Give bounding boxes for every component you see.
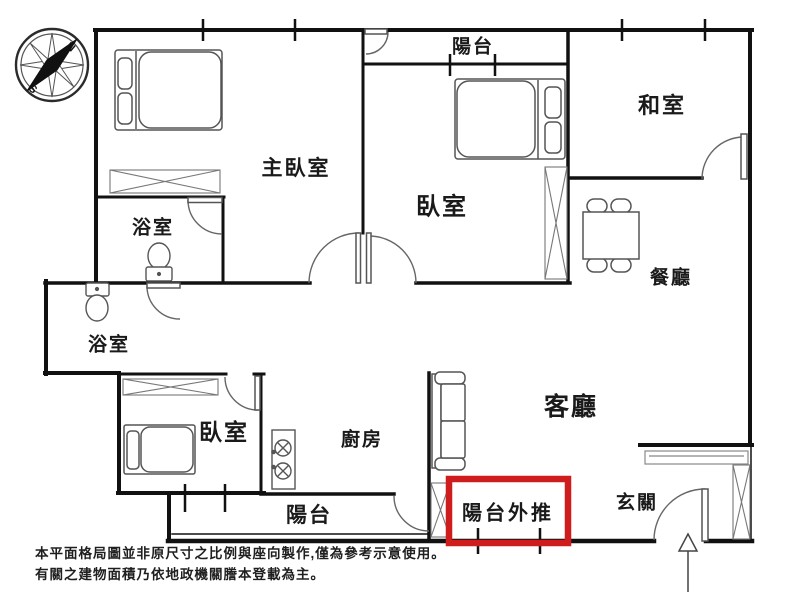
compass-icon: N S	[16, 29, 88, 101]
room-label-balcony-top: 陽台	[452, 32, 494, 59]
upper-bedroom-door-arc	[369, 236, 416, 283]
dining-chair	[587, 258, 607, 272]
master-wardrobe	[110, 170, 220, 193]
kitchen-balcony-door-arc	[394, 496, 429, 531]
room-label-entryway: 玄關	[616, 488, 658, 515]
entry-arrow	[679, 534, 697, 592]
disclaimer-line-1: 本平面格局圖並非原尺寸之比例與座向製作,僅為參考示意使用。	[35, 543, 446, 564]
sofa	[432, 372, 465, 470]
entry-door-arc	[654, 489, 705, 540]
lower-bedroom-bed	[124, 425, 195, 474]
toilet-lower	[86, 283, 109, 321]
master-bed	[115, 50, 222, 130]
upper-bedroom-wardrobe	[545, 167, 567, 279]
dining-table	[583, 212, 639, 259]
lower-bedroom-door-arc	[225, 377, 258, 410]
disclaimer-line-2: 有關之建物面積乃依地政機關謄本登載為主。	[35, 564, 446, 585]
entry-shelf	[645, 451, 748, 464]
balcony-small-door-arc	[366, 32, 388, 54]
stove	[272, 430, 295, 489]
dining-set	[583, 199, 639, 272]
room-label-bathroom-lower: 浴室	[88, 330, 130, 357]
dining-chair	[587, 199, 607, 213]
room-label-kitchen: 廚房	[341, 425, 383, 452]
disclaimer-text: 本平面格局圖並非原尺寸之比例與座向製作,僅為參考示意使用。 有關之建物面積乃依地…	[35, 543, 446, 585]
floor-plan: N S 主臥室 臥室 和室 陽台 浴室 浴室 餐廳 臥室 廚房 客廳 陽台 陽台…	[0, 0, 800, 600]
room-label-dining-room: 餐廳	[650, 263, 692, 290]
room-label-master-bedroom: 主臥室	[262, 152, 331, 182]
room-label-bathroom-upper: 浴室	[132, 213, 174, 240]
dining-chair	[611, 199, 631, 213]
room-label-bedroom-upper: 臥室	[416, 187, 468, 222]
dining-chair	[611, 258, 631, 272]
lower-bedroom-wardrobe	[123, 379, 218, 395]
entry-shoe-cabinet	[733, 465, 750, 539]
room-label-balcony-bottom: 陽台	[286, 499, 332, 529]
japanese-room-door-arc	[702, 137, 744, 179]
window-ticks	[185, 19, 705, 554]
room-label-living-room: 客廳	[544, 387, 598, 423]
lower-bath-door-arc	[147, 286, 180, 319]
master-bath-door-arc	[188, 200, 222, 234]
room-label-balcony-extension: 陽台外推	[462, 497, 554, 526]
room-label-bedroom-lower: 臥室	[199, 413, 249, 447]
toilet-upper	[146, 243, 172, 281]
master-bedroom-door-arc	[309, 233, 359, 283]
room-label-japanese-room: 和室	[638, 88, 686, 120]
upper-bedroom-bed	[455, 79, 565, 159]
